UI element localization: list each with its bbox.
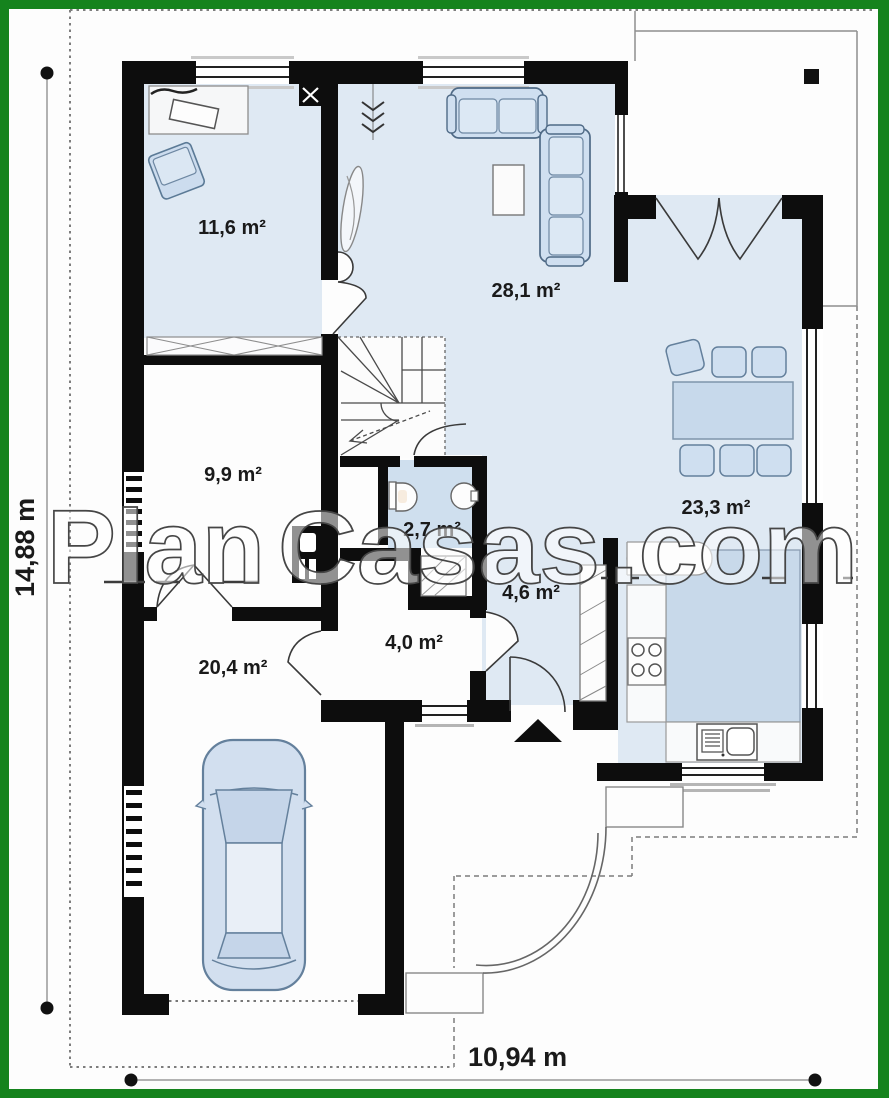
svg-text:10,94 m: 10,94 m bbox=[468, 1042, 567, 1072]
svg-text:.com: .com bbox=[609, 490, 858, 605]
svg-text:9,9 m²: 9,9 m² bbox=[204, 464, 262, 486]
svg-text:Casas: Casas bbox=[278, 490, 600, 605]
svg-text:4,0 m²: 4,0 m² bbox=[385, 632, 443, 654]
svg-text:14,88 m: 14,88 m bbox=[10, 498, 40, 597]
svg-text:28,1 m²: 28,1 m² bbox=[492, 280, 561, 302]
svg-text:Plan: Plan bbox=[47, 489, 265, 606]
svg-text:20,4 m²: 20,4 m² bbox=[199, 657, 268, 679]
svg-text:11,6 m²: 11,6 m² bbox=[198, 217, 266, 239]
